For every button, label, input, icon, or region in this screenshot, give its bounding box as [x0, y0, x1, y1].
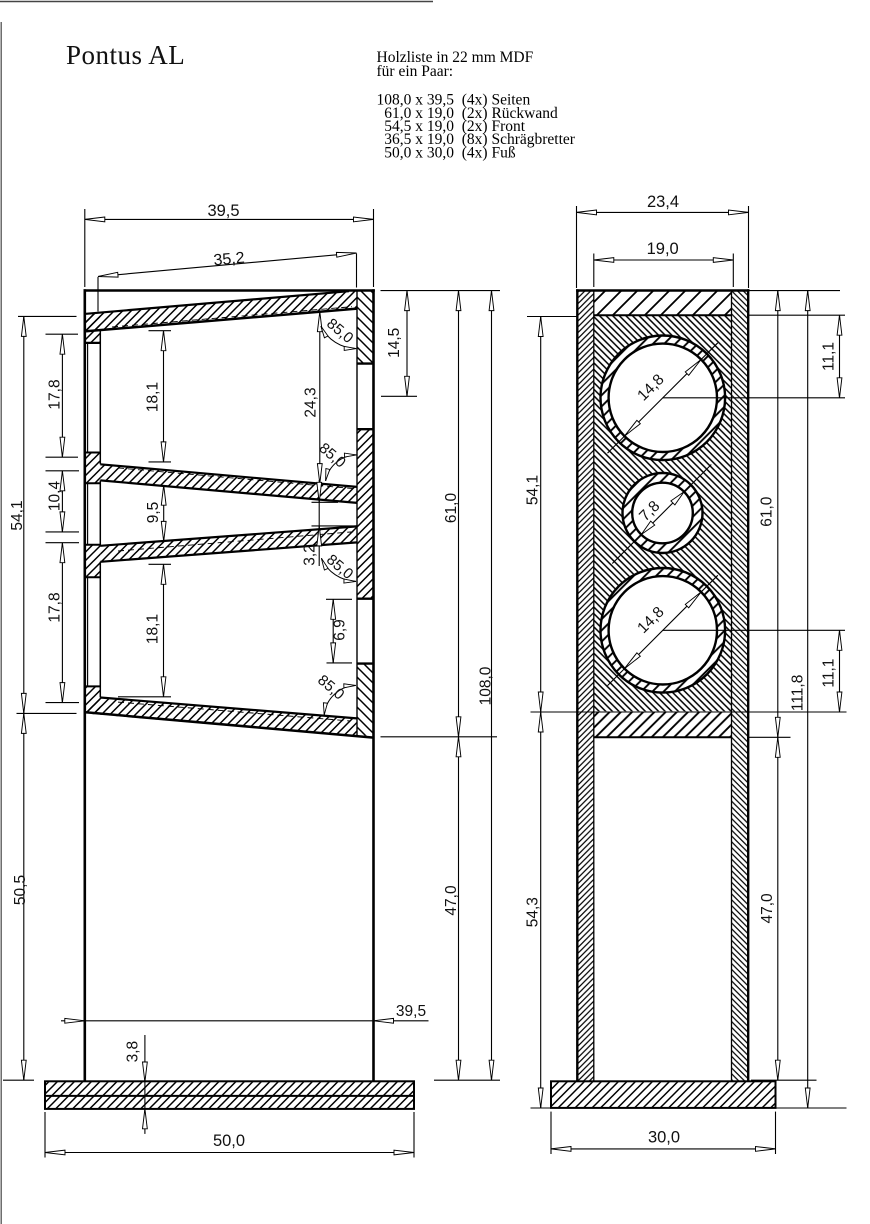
svg-text:3,2: 3,2	[302, 544, 319, 566]
svg-text:61,0: 61,0	[759, 496, 776, 527]
svg-text:17,8: 17,8	[47, 379, 64, 409]
svg-text:61,0: 61,0	[443, 493, 460, 524]
svg-text:54,1: 54,1	[9, 500, 26, 530]
svg-text:47,0: 47,0	[759, 893, 776, 924]
svg-text:39,5: 39,5	[207, 202, 239, 220]
svg-text:19,0: 19,0	[647, 240, 679, 258]
svg-text:111,8: 111,8	[790, 675, 807, 712]
svg-text:23,4: 23,4	[647, 193, 679, 211]
svg-text:50,5: 50,5	[12, 875, 29, 905]
svg-text:47,0: 47,0	[443, 885, 460, 916]
svg-text:50,0: 50,0	[213, 1132, 245, 1150]
svg-text:24,3: 24,3	[303, 387, 320, 417]
svg-text:39,5: 39,5	[396, 1003, 426, 1020]
svg-text:18,1: 18,1	[145, 614, 162, 644]
svg-text:9,5: 9,5	[145, 502, 162, 524]
svg-text:54,3: 54,3	[525, 897, 542, 927]
svg-text:3,8: 3,8	[125, 1041, 142, 1063]
svg-text:Pontus AL: Pontus AL	[66, 40, 185, 70]
svg-text:6,9: 6,9	[332, 619, 349, 641]
svg-text:30,0: 30,0	[648, 1129, 680, 1147]
svg-text:17,8: 17,8	[47, 592, 64, 622]
svg-text:14,5: 14,5	[386, 328, 403, 358]
svg-text:für ein Paar:: für ein Paar:	[377, 63, 454, 80]
svg-text:108,0: 108,0	[478, 666, 495, 705]
svg-text:50,0 x 30,0 (4x) Fuß: 50,0 x 30,0 (4x) Fuß	[377, 144, 516, 161]
svg-text:11,1: 11,1	[821, 659, 838, 688]
svg-text:11,1: 11,1	[821, 342, 838, 371]
svg-text:35,2: 35,2	[213, 250, 246, 270]
svg-text:10,4: 10,4	[47, 481, 64, 512]
svg-text:54,1: 54,1	[525, 475, 542, 505]
svg-text:18,1: 18,1	[145, 382, 162, 412]
